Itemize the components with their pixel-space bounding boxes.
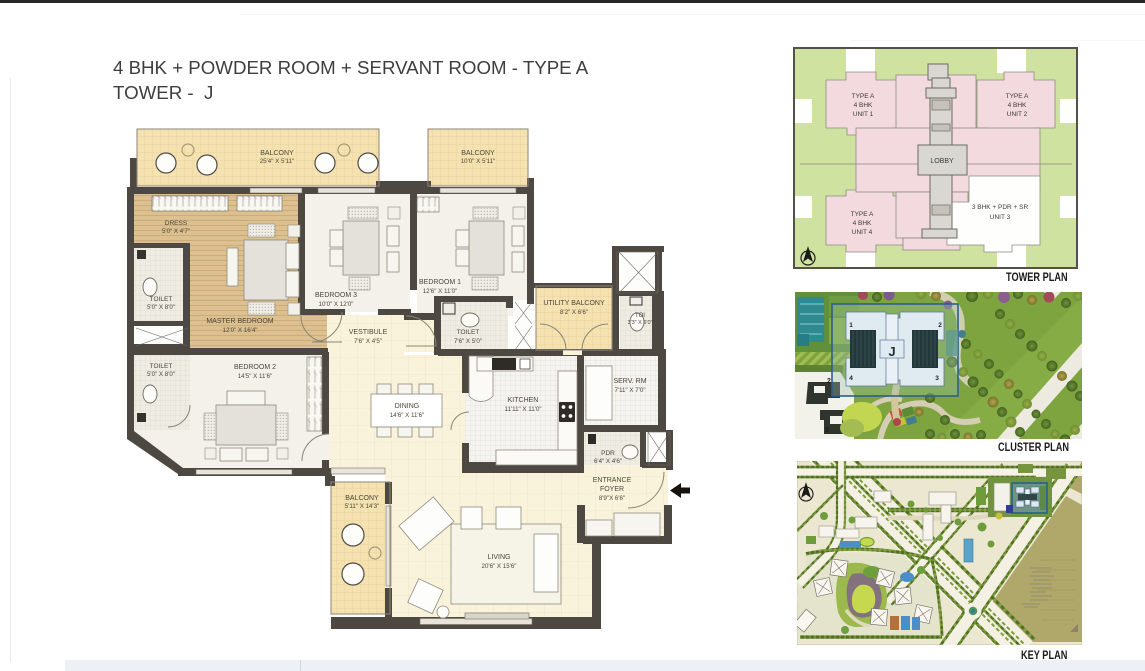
svg-text:UNIT 4: UNIT 4: [852, 229, 873, 236]
svg-text:TOI: TOI: [635, 313, 645, 319]
svg-text:KITCHEN: KITCHEN: [508, 397, 539, 404]
svg-text:7'6" X 4'5": 7'6" X 4'5": [354, 338, 382, 345]
svg-text:20'6" X 15'6": 20'6" X 15'6": [482, 563, 517, 570]
svg-text:2: 2: [938, 322, 942, 329]
svg-text:BALCONY: BALCONY: [345, 495, 379, 502]
svg-text:UTILITY BALCONY: UTILITY BALCONY: [543, 300, 605, 307]
svg-text:TOILET: TOILET: [150, 363, 173, 370]
svg-text:1: 1: [849, 322, 853, 329]
svg-text:5'0" X 8'0": 5'0" X 8'0": [147, 371, 175, 378]
svg-text:ENTRANCE: ENTRANCE: [593, 477, 632, 484]
svg-text:4: 4: [849, 375, 853, 382]
svg-text:UNIT 1: UNIT 1: [853, 111, 874, 118]
svg-text:14'6" X 11'6": 14'6" X 11'6": [390, 412, 425, 419]
svg-text:14'5" X 11'6": 14'5" X 11'6": [238, 373, 273, 380]
svg-text:MASTER BEDROOM: MASTER BEDROOM: [206, 318, 273, 325]
svg-text:12'0" X 16'4": 12'0" X 16'4": [223, 327, 258, 334]
svg-text:3: 3: [935, 375, 939, 382]
svg-text:TOILET: TOILET: [457, 329, 480, 336]
svg-text:10'0" X 5'11": 10'0" X 5'11": [461, 158, 496, 165]
svg-text:4 BHK: 4 BHK: [1008, 102, 1027, 109]
svg-text:BALCONY: BALCONY: [461, 150, 495, 157]
svg-text:8'9"X 6'6": 8'9"X 6'6": [599, 495, 625, 502]
svg-text:TYPE A: TYPE A: [852, 93, 875, 100]
svg-text:3 BHK + PDR + SR: 3 BHK + PDR + SR: [972, 204, 1029, 211]
svg-text:PDR: PDR: [601, 450, 615, 457]
svg-text:3: 3: [825, 427, 829, 434]
svg-text:DRESS: DRESS: [165, 220, 188, 227]
svg-text:BEDROOM 3: BEDROOM 3: [315, 292, 357, 299]
svg-text:SERV. RM: SERV. RM: [613, 378, 646, 385]
svg-text:12'6" X 11'0": 12'6" X 11'0": [423, 288, 458, 295]
svg-text:BEDROOM 1: BEDROOM 1: [419, 279, 461, 286]
svg-text:LIVING: LIVING: [488, 554, 511, 561]
svg-text:BALCONY: BALCONY: [260, 150, 294, 157]
svg-text:10'0" X 12'0": 10'0" X 12'0": [319, 301, 354, 308]
svg-text:7'11" X 7'0": 7'11" X 7'0": [614, 387, 645, 394]
svg-text:5'0" X 8'0": 5'0" X 8'0": [147, 304, 175, 311]
svg-text:DINING: DINING: [395, 403, 420, 410]
svg-text:VESTIBULE: VESTIBULE: [349, 329, 388, 336]
svg-text:7'6" X 5'0": 7'6" X 5'0": [454, 338, 482, 345]
svg-text:25'4" X 5'11": 25'4" X 5'11": [260, 158, 295, 165]
svg-text:UNIT 2: UNIT 2: [1007, 111, 1028, 118]
svg-text:LOBBY: LOBBY: [930, 158, 954, 165]
svg-text:FOYER: FOYER: [600, 486, 624, 493]
svg-text:8'2" X 6'6": 8'2" X 6'6": [560, 309, 588, 316]
svg-text:6'4" X 4'6": 6'4" X 4'6": [594, 458, 622, 465]
svg-text:4 BHK: 4 BHK: [854, 102, 873, 109]
svg-text:2: 2: [827, 378, 831, 385]
svg-text:TYPE A: TYPE A: [851, 211, 874, 218]
svg-text:J: J: [888, 344, 895, 359]
svg-text:3'3" X 6'0": 3'3" X 6'0": [628, 320, 653, 326]
svg-text:4 BHK: 4 BHK: [853, 220, 872, 227]
svg-text:UNIT 3: UNIT 3: [990, 214, 1011, 221]
svg-text:TYPE A: TYPE A: [1006, 93, 1029, 100]
svg-text:BEDROOM 2: BEDROOM 2: [234, 364, 276, 371]
svg-text:5'11" X 14'3": 5'11" X 14'3": [345, 503, 380, 510]
svg-text:11'11" X 11'0": 11'11" X 11'0": [504, 406, 541, 413]
svg-text:TOILET: TOILET: [150, 296, 173, 303]
svg-text:5'0" X 4'7": 5'0" X 4'7": [162, 228, 190, 235]
